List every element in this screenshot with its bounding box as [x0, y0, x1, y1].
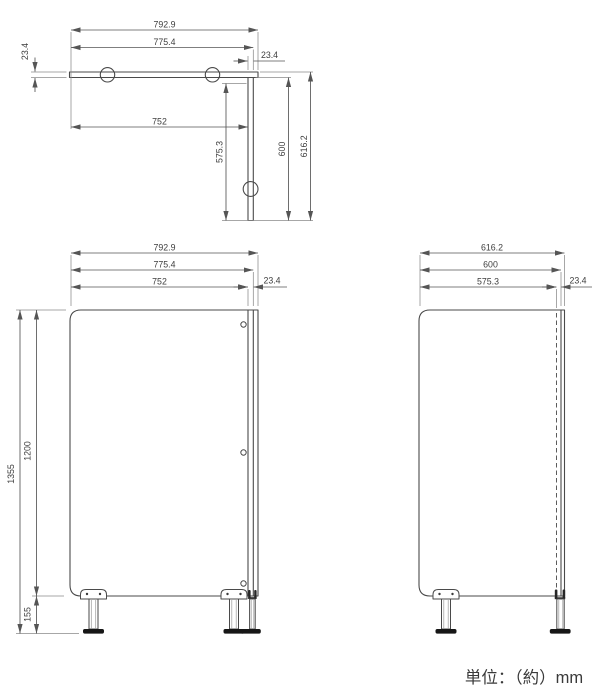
plan-dim-width-outer: 792.9 — [71, 19, 258, 30]
side-leg-right-foot — [550, 629, 571, 634]
front-hole-middle — [241, 450, 246, 455]
dim-label-plan-thickness-left: 23.4 — [20, 43, 30, 60]
partition-dimension-drawing: 792.9 775.4 752 23.4 23.4 575.3 6 — [0, 0, 600, 700]
dim-label-front-width-mid: 775.4 — [153, 259, 175, 269]
front-dim-width-inner: 752 — [71, 276, 248, 287]
plan-dim-depth-outer: 616.2 — [299, 72, 311, 221]
dim-label-plan-depth-outer: 616.2 — [299, 135, 309, 157]
plan-dim-depth-inner: 575.3 — [214, 84, 226, 221]
plan-dim-depth-mid: 600 — [277, 78, 289, 221]
front-view: 792.9 775.4 752 23.4 1355 1200 155 — [6, 242, 287, 633]
front-dim-height-total: 1355 — [6, 310, 20, 634]
dim-label-front-width-inner: 752 — [152, 276, 167, 286]
front-dim-leg-height: 155 — [22, 596, 36, 634]
plan-extension-lines — [31, 32, 313, 221]
side-leg-left-foot — [436, 629, 457, 634]
dim-label-front-height-panel: 1200 — [22, 441, 32, 461]
plan-dim-thickness-right: 23.4 — [234, 50, 286, 61]
unit-note: 単位：（約）mm — [465, 668, 583, 687]
dim-label-side-depth-mid: 600 — [483, 259, 498, 269]
plan-dim-thickness-left: 23.4 — [20, 43, 35, 92]
plan-clamp-right — [205, 68, 219, 82]
plan-dim-width-inner: 752 — [71, 116, 248, 127]
front-leg-left — [81, 590, 107, 634]
dim-label-plan-width-inner: 752 — [152, 116, 167, 126]
dim-label-plan-thickness-right: 23.4 — [261, 50, 278, 60]
front-leg-left-foot — [83, 629, 104, 634]
side-dim-thickness-right: 23.4 — [542, 275, 592, 287]
dim-label-front-height-total: 1355 — [6, 464, 16, 484]
dim-label-front-leg-height: 155 — [22, 607, 32, 622]
dim-label-side-thickness-right: 23.4 — [569, 275, 586, 285]
front-dim-thickness-right: 23.4 — [234, 275, 288, 287]
dim-label-front-width-outer: 792.9 — [153, 242, 175, 252]
side-dim-depth-outer: 616.2 — [420, 242, 565, 253]
front-dim-width-outer: 792.9 — [71, 242, 258, 253]
front-dim-width-mid: 775.4 — [71, 259, 253, 270]
dim-label-plan-width-mid: 775.4 — [153, 37, 175, 47]
side-dim-depth-mid: 600 — [420, 259, 561, 270]
dim-label-plan-width-outer: 792.9 — [153, 19, 175, 29]
dim-label-front-thickness-right: 23.4 — [263, 275, 280, 285]
dim-label-side-depth-outer: 616.2 — [481, 242, 503, 252]
front-dim-height-panel: 1200 — [22, 310, 36, 596]
side-dim-depth-inner: 575.3 — [420, 276, 557, 287]
side-view: 616.2 600 575.3 23.4 — [419, 242, 592, 633]
plan-main-panel — [70, 72, 259, 78]
front-hole-bottom — [241, 581, 246, 586]
front-hole-top — [241, 322, 246, 327]
plan-side-panel — [248, 78, 253, 221]
plan-clamp-left — [100, 68, 114, 82]
plan-view: 792.9 775.4 752 23.4 23.4 575.3 6 — [20, 19, 313, 220]
dim-label-side-depth-inner: 575.3 — [477, 276, 499, 286]
dim-label-plan-depth-inner: 575.3 — [214, 141, 224, 163]
front-leg-right — [221, 590, 247, 634]
side-panel-outline — [419, 310, 565, 596]
front-leg-side-foot — [240, 629, 260, 634]
side-leg-left — [433, 590, 459, 634]
plan-dim-width-mid: 775.4 — [71, 37, 253, 48]
dim-label-plan-depth-mid: 600 — [277, 142, 287, 157]
plan-clamp-side — [243, 182, 258, 197]
front-panel-outline — [70, 310, 258, 596]
technical-drawing-page: 792.9 775.4 752 23.4 23.4 575.3 6 — [0, 0, 600, 700]
